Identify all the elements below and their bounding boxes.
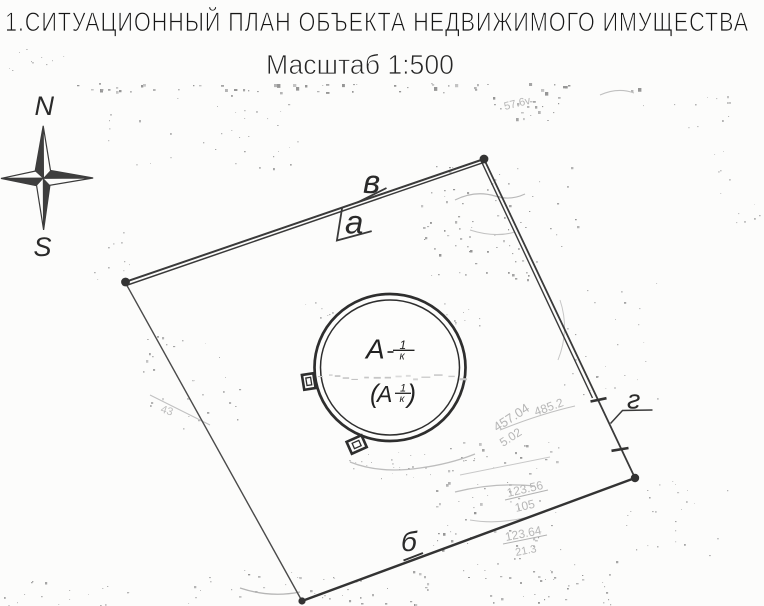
svg-text:в: в — [363, 163, 380, 200]
svg-text:N: N — [35, 91, 55, 121]
svg-text:б: б — [401, 526, 418, 557]
svg-text:А: А — [364, 334, 385, 365]
svg-text:Масштаб 1:500: Масштаб 1:500 — [266, 49, 454, 80]
svg-text:а: а — [345, 204, 363, 241]
svg-text:1.СИТУАЦИОННЫЙ ПЛАН ОБЪЕКТА НЕ: 1.СИТУАЦИОННЫЙ ПЛАН ОБЪЕКТА НЕДВИЖИМОГО … — [5, 7, 749, 37]
svg-text:к: к — [400, 351, 406, 363]
svg-text:г: г — [627, 385, 640, 415]
svg-text:S: S — [34, 232, 52, 262]
svg-text:А: А — [375, 381, 392, 407]
